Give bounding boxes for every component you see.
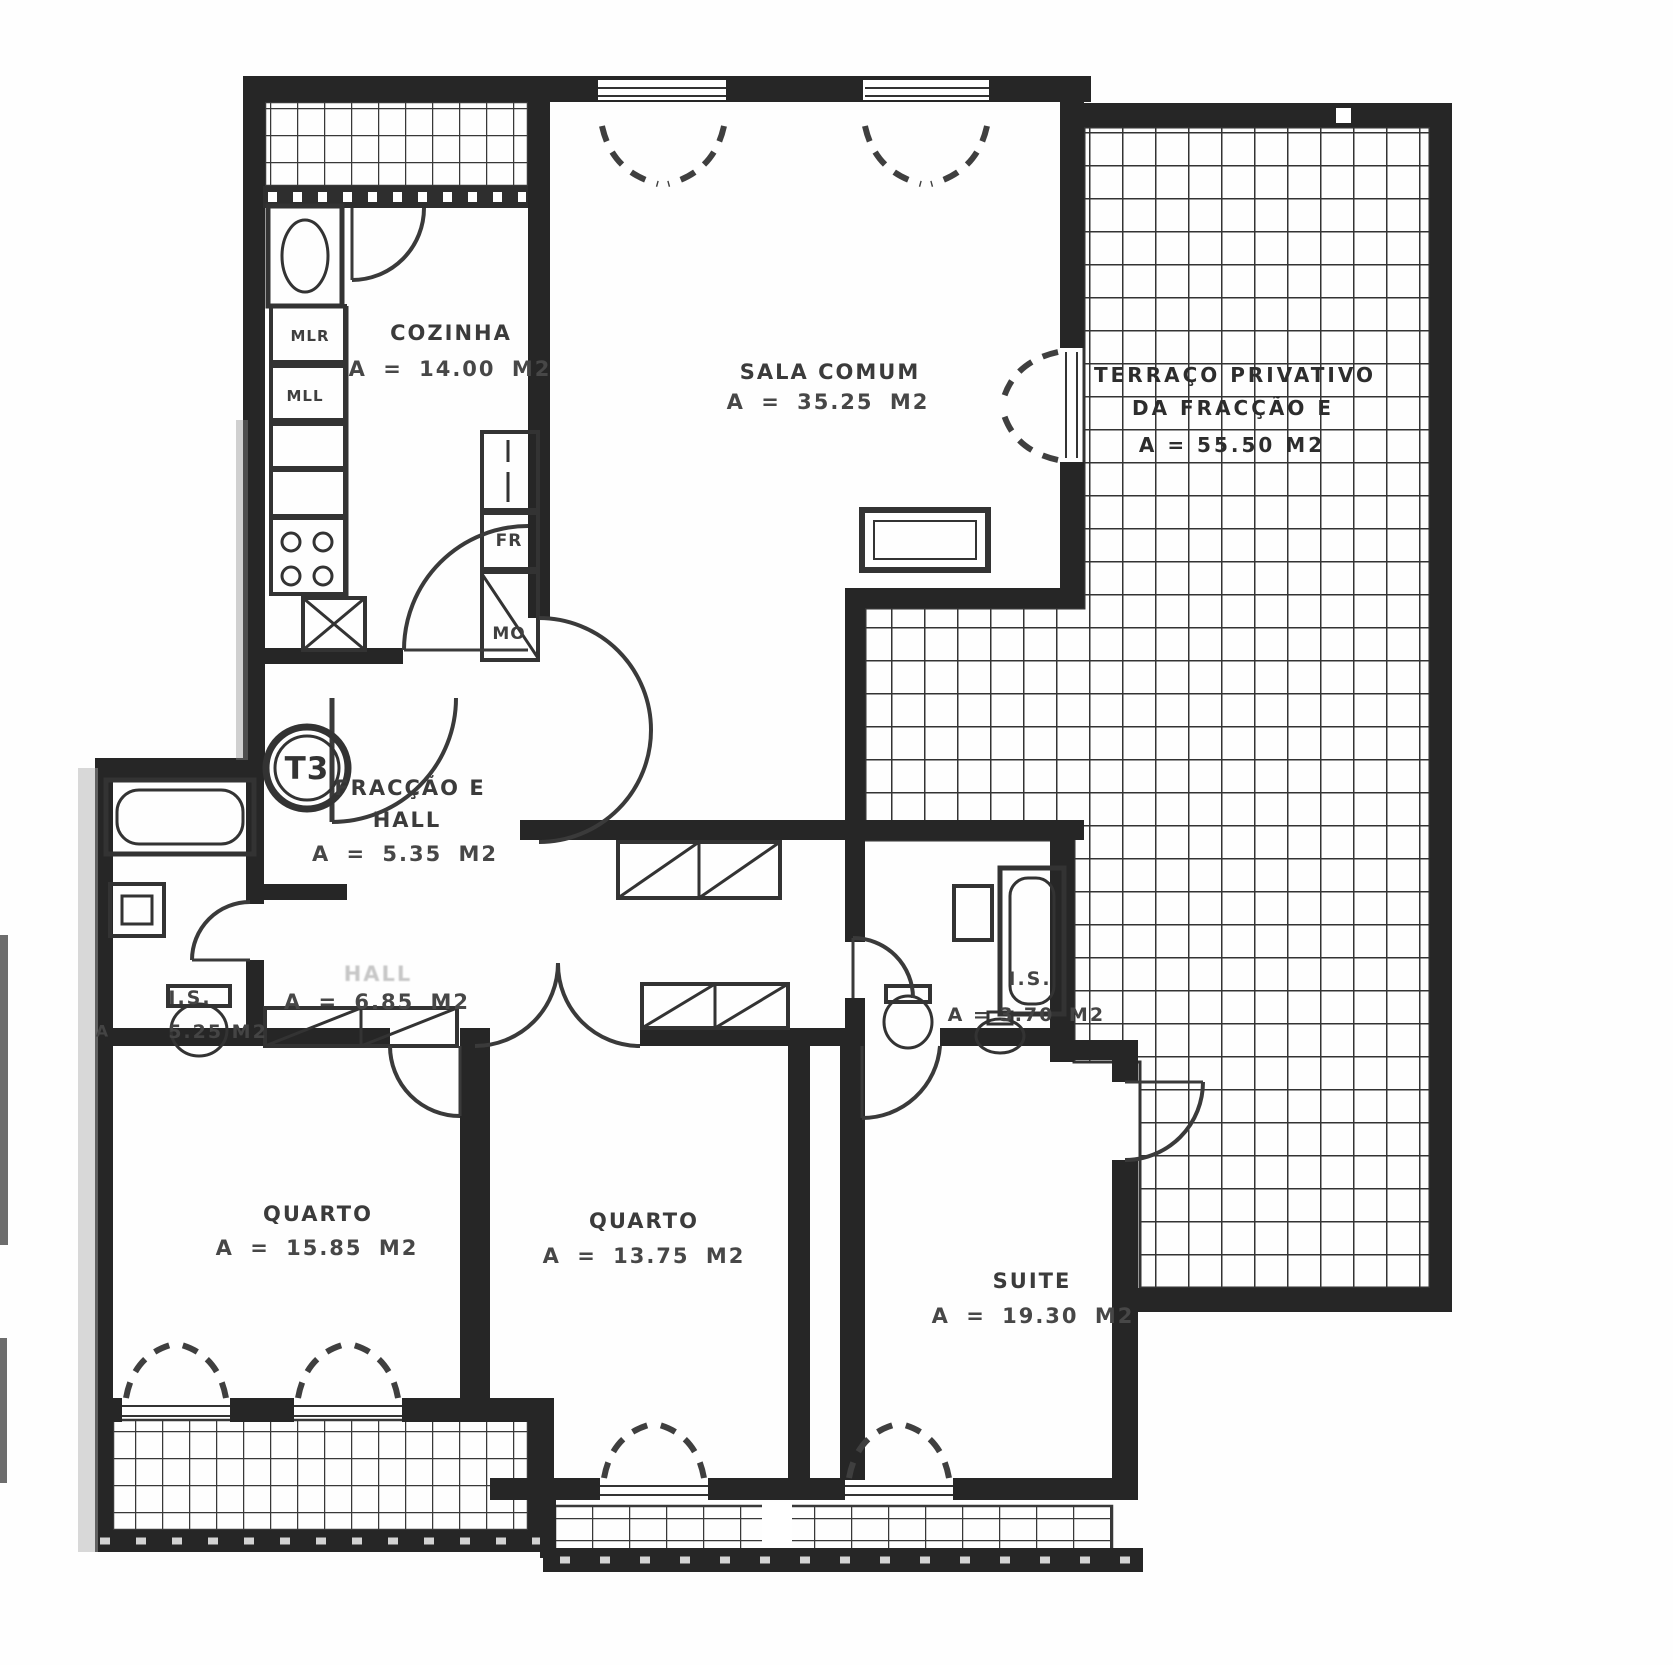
wardrobe-quarto2	[642, 984, 788, 1028]
kitchen-door	[404, 526, 528, 650]
sala-french-window-1	[602, 126, 724, 184]
unit-badge-circle	[266, 727, 348, 809]
suite-door	[862, 1046, 940, 1118]
kitchen-counter-left	[271, 306, 365, 650]
balcony-bottomcenter-tiles	[554, 1506, 1112, 1552]
dishwasher	[271, 366, 345, 420]
quarto1-french-window-2	[298, 1344, 398, 1398]
washing-machine	[271, 306, 345, 362]
bathtub-suite	[1000, 868, 1064, 1014]
balcony-divider	[762, 1502, 792, 1556]
wardrobes	[265, 842, 788, 1046]
balcony-bottomleft-tiles	[113, 1420, 528, 1530]
is1-door	[192, 902, 250, 960]
laundry-door	[352, 208, 424, 280]
is2-door	[853, 938, 913, 998]
quarto1-french-window-1	[126, 1344, 226, 1398]
stove	[271, 518, 345, 594]
quarto1-door	[390, 1046, 460, 1116]
terrace-tiles	[865, 127, 1430, 1288]
floorplan-page: COZINHA A = 14.00 M2 SALA COMUM A = 35.2…	[0, 0, 1673, 1665]
toilet-suite	[884, 986, 932, 1048]
bidet-left	[110, 884, 164, 936]
corridor-double-door	[475, 963, 640, 1046]
balcony-topleft-tiles	[265, 102, 528, 186]
laundry-tub	[268, 206, 342, 306]
quarto2-french-window	[604, 1424, 704, 1478]
bathtub-left	[106, 780, 254, 854]
wardrobe-corridor	[618, 842, 780, 898]
planter	[862, 510, 988, 570]
hall-sala-double-door	[539, 618, 651, 842]
kitchen-sink	[303, 598, 365, 650]
cabinet-suite-bath	[954, 886, 992, 940]
sala-terrace-french-window	[1002, 352, 1058, 460]
floorplan-drawing	[0, 0, 1673, 1665]
sala-french-window-2	[865, 126, 987, 184]
